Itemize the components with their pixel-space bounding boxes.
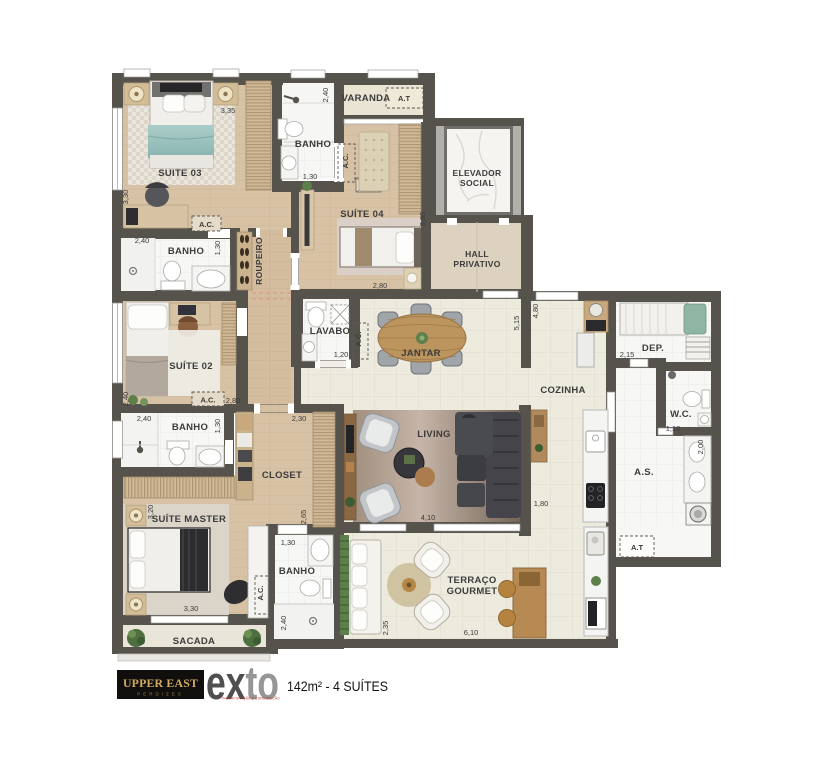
svg-text:3,30: 3,30 xyxy=(184,604,199,613)
svg-text:A.T: A.T xyxy=(398,94,411,103)
svg-text:ELEVADOR: ELEVADOR xyxy=(453,168,502,178)
svg-text:2,65: 2,65 xyxy=(299,510,308,525)
svg-text:A.C.: A.C. xyxy=(354,332,363,347)
svg-text:1,30: 1,30 xyxy=(213,241,222,256)
svg-text:3,85: 3,85 xyxy=(418,212,427,227)
svg-text:2,40: 2,40 xyxy=(135,236,150,245)
svg-text:3,30: 3,30 xyxy=(121,190,130,205)
svg-text:BANHO: BANHO xyxy=(295,139,331,150)
svg-text:1,80: 1,80 xyxy=(534,499,549,508)
svg-text:PRIVATIVO: PRIVATIVO xyxy=(453,259,500,269)
svg-text:SACADA: SACADA xyxy=(173,636,215,647)
svg-text:3,35: 3,35 xyxy=(221,106,236,115)
svg-text:JANTAR: JANTAR xyxy=(401,348,441,359)
svg-text:LAVABO: LAVABO xyxy=(310,326,351,337)
svg-text:SUÍTE 04: SUÍTE 04 xyxy=(340,209,384,220)
svg-text:HALL: HALL xyxy=(465,249,489,259)
svg-text:4,10: 4,10 xyxy=(421,513,436,522)
svg-text:2,40: 2,40 xyxy=(137,414,152,423)
svg-text:1,20: 1,20 xyxy=(334,350,349,359)
svg-text:A.T: A.T xyxy=(631,543,644,552)
svg-text:2,40: 2,40 xyxy=(279,616,288,631)
svg-text:A.C.: A.C. xyxy=(341,154,350,169)
svg-text:A.C.: A.C. xyxy=(201,396,216,405)
svg-text:BANHO: BANHO xyxy=(168,246,204,257)
svg-text:exto: exto xyxy=(206,656,279,709)
svg-text:SOCIAL: SOCIAL xyxy=(460,178,494,188)
svg-text:DEP.: DEP. xyxy=(642,343,664,354)
svg-text:COZINHA: COZINHA xyxy=(540,385,585,396)
svg-text:W.C.: W.C. xyxy=(670,409,692,420)
svg-text:3,20: 3,20 xyxy=(146,505,155,520)
svg-text:2,80: 2,80 xyxy=(373,281,388,290)
svg-text:2,00: 2,00 xyxy=(696,440,705,455)
svg-text:6,10: 6,10 xyxy=(464,628,479,637)
svg-text:2,35: 2,35 xyxy=(381,621,390,636)
svg-text:VARANDA: VARANDA xyxy=(342,93,391,104)
svg-text:2,30: 2,30 xyxy=(292,414,307,423)
svg-text:4,80: 4,80 xyxy=(531,304,540,319)
svg-text:1,10: 1,10 xyxy=(666,424,681,433)
svg-text:2,40: 2,40 xyxy=(321,88,330,103)
svg-text:2,80: 2,80 xyxy=(226,396,241,405)
svg-text:BANHO: BANHO xyxy=(279,566,315,577)
svg-text:A.C.: A.C. xyxy=(199,220,214,229)
svg-text:5,15: 5,15 xyxy=(512,316,521,331)
svg-text:A.S.: A.S. xyxy=(634,467,654,478)
svg-text:CLOSET: CLOSET xyxy=(262,470,302,481)
svg-text:ROUPEIRO: ROUPEIRO xyxy=(254,237,264,285)
svg-text:1,30: 1,30 xyxy=(303,172,318,181)
svg-text:LIVING: LIVING xyxy=(417,429,450,440)
svg-text:2,40: 2,40 xyxy=(121,392,130,407)
svg-text:GOURMET: GOURMET xyxy=(447,586,498,597)
svg-text:TERRAÇO: TERRAÇO xyxy=(447,575,496,586)
svg-text:UPPER EAST: UPPER EAST xyxy=(123,676,198,690)
svg-text:2,15: 2,15 xyxy=(620,350,635,359)
svg-text:PERDIZES: PERDIZES xyxy=(137,692,184,697)
svg-text:A.C.: A.C. xyxy=(256,586,265,601)
svg-text:INCORPORAÇÃO E CONSTRUÇÃO: INCORPORAÇÃO E CONSTRUÇÃO xyxy=(222,696,280,701)
svg-text:BANHO: BANHO xyxy=(172,422,208,433)
svg-text:1,30: 1,30 xyxy=(213,419,222,434)
svg-text:1,30: 1,30 xyxy=(281,538,296,547)
svg-text:SUITE 03: SUITE 03 xyxy=(158,168,202,179)
svg-text:SUÍTE 02: SUÍTE 02 xyxy=(169,361,213,372)
svg-text:142m² - 4 SUÍTES: 142m² - 4 SUÍTES xyxy=(287,679,388,694)
svg-text:SUÍTE MASTER: SUÍTE MASTER xyxy=(152,514,226,525)
